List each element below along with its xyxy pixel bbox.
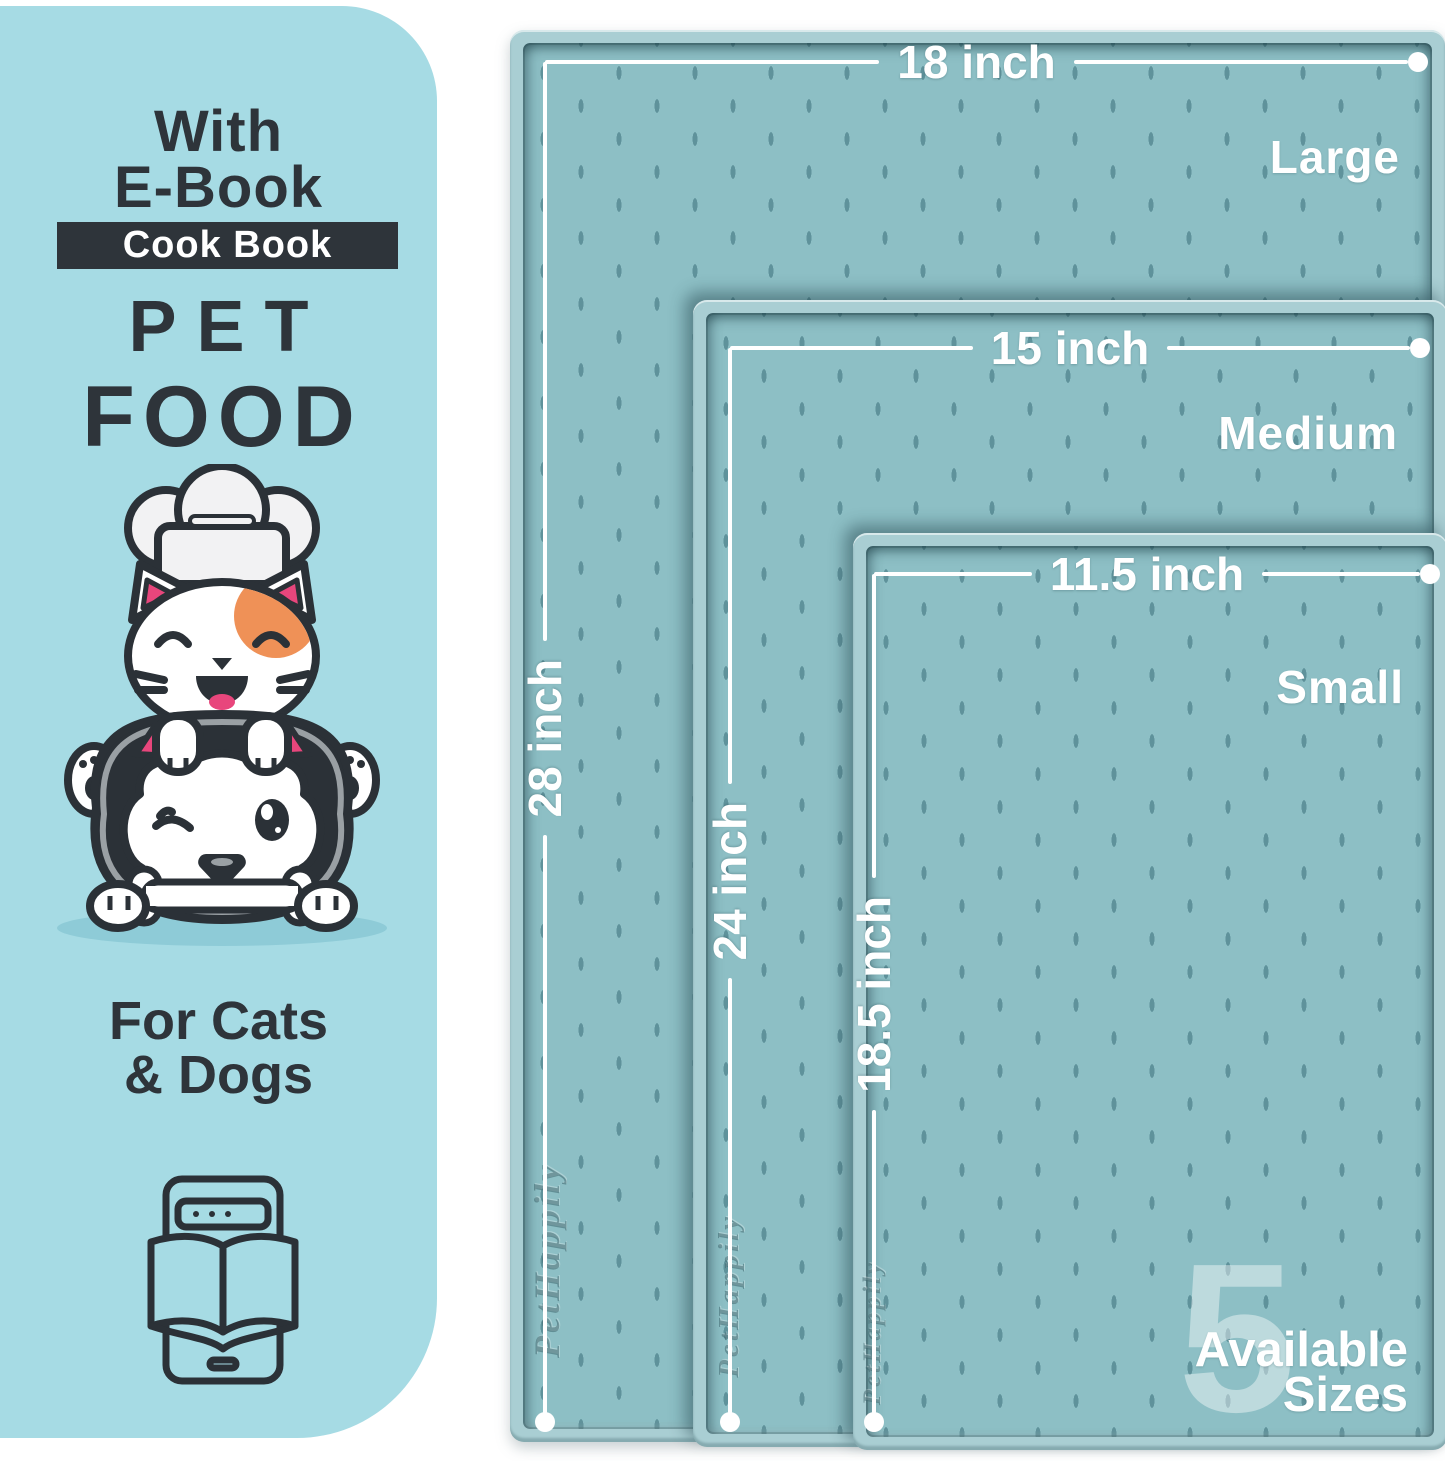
size-label-medium: Medium — [1218, 406, 1398, 460]
dimension-height-medium: 24 inch — [728, 348, 732, 1414]
cat-tongue — [209, 694, 235, 710]
dim-line-segment — [874, 572, 1032, 576]
left-info-panel: With E-Book Cook Book PET FOOD — [0, 6, 437, 1438]
dimension-height-small: 18.5 inch — [872, 574, 876, 1414]
dimension-width-medium: 15 inch — [730, 346, 1410, 350]
audience-line2: & Dogs — [0, 1044, 437, 1106]
dim-line-segment — [1074, 60, 1408, 64]
dim-line-segment — [728, 348, 732, 784]
dim-line-segment — [728, 978, 732, 1414]
available-sizes-line1: Available — [1195, 1328, 1408, 1373]
audience-line1: For Cats — [0, 990, 437, 1052]
dimension-width-large: 18 inch — [545, 60, 1408, 64]
ebook-tablet-icon — [138, 1174, 308, 1386]
dimension-width-small: 11.5 inch — [874, 572, 1420, 576]
brand-watermark-large: PetHappily — [526, 1162, 568, 1358]
cookbook-badge: Cook Book — [57, 222, 398, 269]
dim-line-segment — [1167, 346, 1410, 350]
dog-open-eye — [255, 799, 289, 841]
dim-line-segment — [543, 835, 547, 1414]
available-sizes-line2: Sizes — [1195, 1373, 1408, 1418]
dim-line-segment — [1262, 572, 1420, 576]
cookbook-badge-label: Cook Book — [123, 224, 333, 267]
dim-line-segment — [872, 574, 876, 878]
dimension-height-medium-label: 24 inch — [703, 784, 757, 979]
product-image: With E-Book Cook Book PET FOOD — [0, 0, 1445, 1461]
dimension-height-small-label: 18.5 inch — [847, 878, 901, 1111]
dimension-endpoint-dot — [864, 1412, 884, 1432]
dimension-endpoint-dot — [535, 1412, 555, 1432]
dimension-width-small-label: 11.5 inch — [1032, 547, 1262, 601]
dimension-endpoint-dot — [720, 1412, 740, 1432]
with-text-line2: E-Book — [0, 154, 437, 221]
dimension-height-large-label: 28 inch — [518, 641, 572, 836]
dimension-width-medium-label: 15 inch — [973, 321, 1168, 375]
cat-chef-dog-illustration — [40, 464, 405, 958]
product-title-line2: FOOD — [0, 368, 437, 467]
dimension-endpoint-dot — [1410, 338, 1430, 358]
dim-line-segment — [545, 60, 879, 64]
dim-line-segment — [730, 346, 973, 350]
dim-line-segment — [872, 1110, 876, 1414]
dimension-endpoint-dot — [1420, 564, 1440, 584]
available-sizes-label: Available Sizes — [1195, 1328, 1408, 1418]
dimension-height-large: 28 inch — [543, 62, 547, 1414]
chef-hat — [128, 466, 316, 584]
size-label-small: Small — [1276, 660, 1404, 714]
dimension-width-large-label: 18 inch — [879, 35, 1074, 89]
dim-line-segment — [543, 62, 547, 641]
dimension-endpoint-dot — [1408, 52, 1428, 72]
product-title-line1: PET — [0, 286, 437, 368]
size-label-large: Large — [1270, 130, 1400, 184]
